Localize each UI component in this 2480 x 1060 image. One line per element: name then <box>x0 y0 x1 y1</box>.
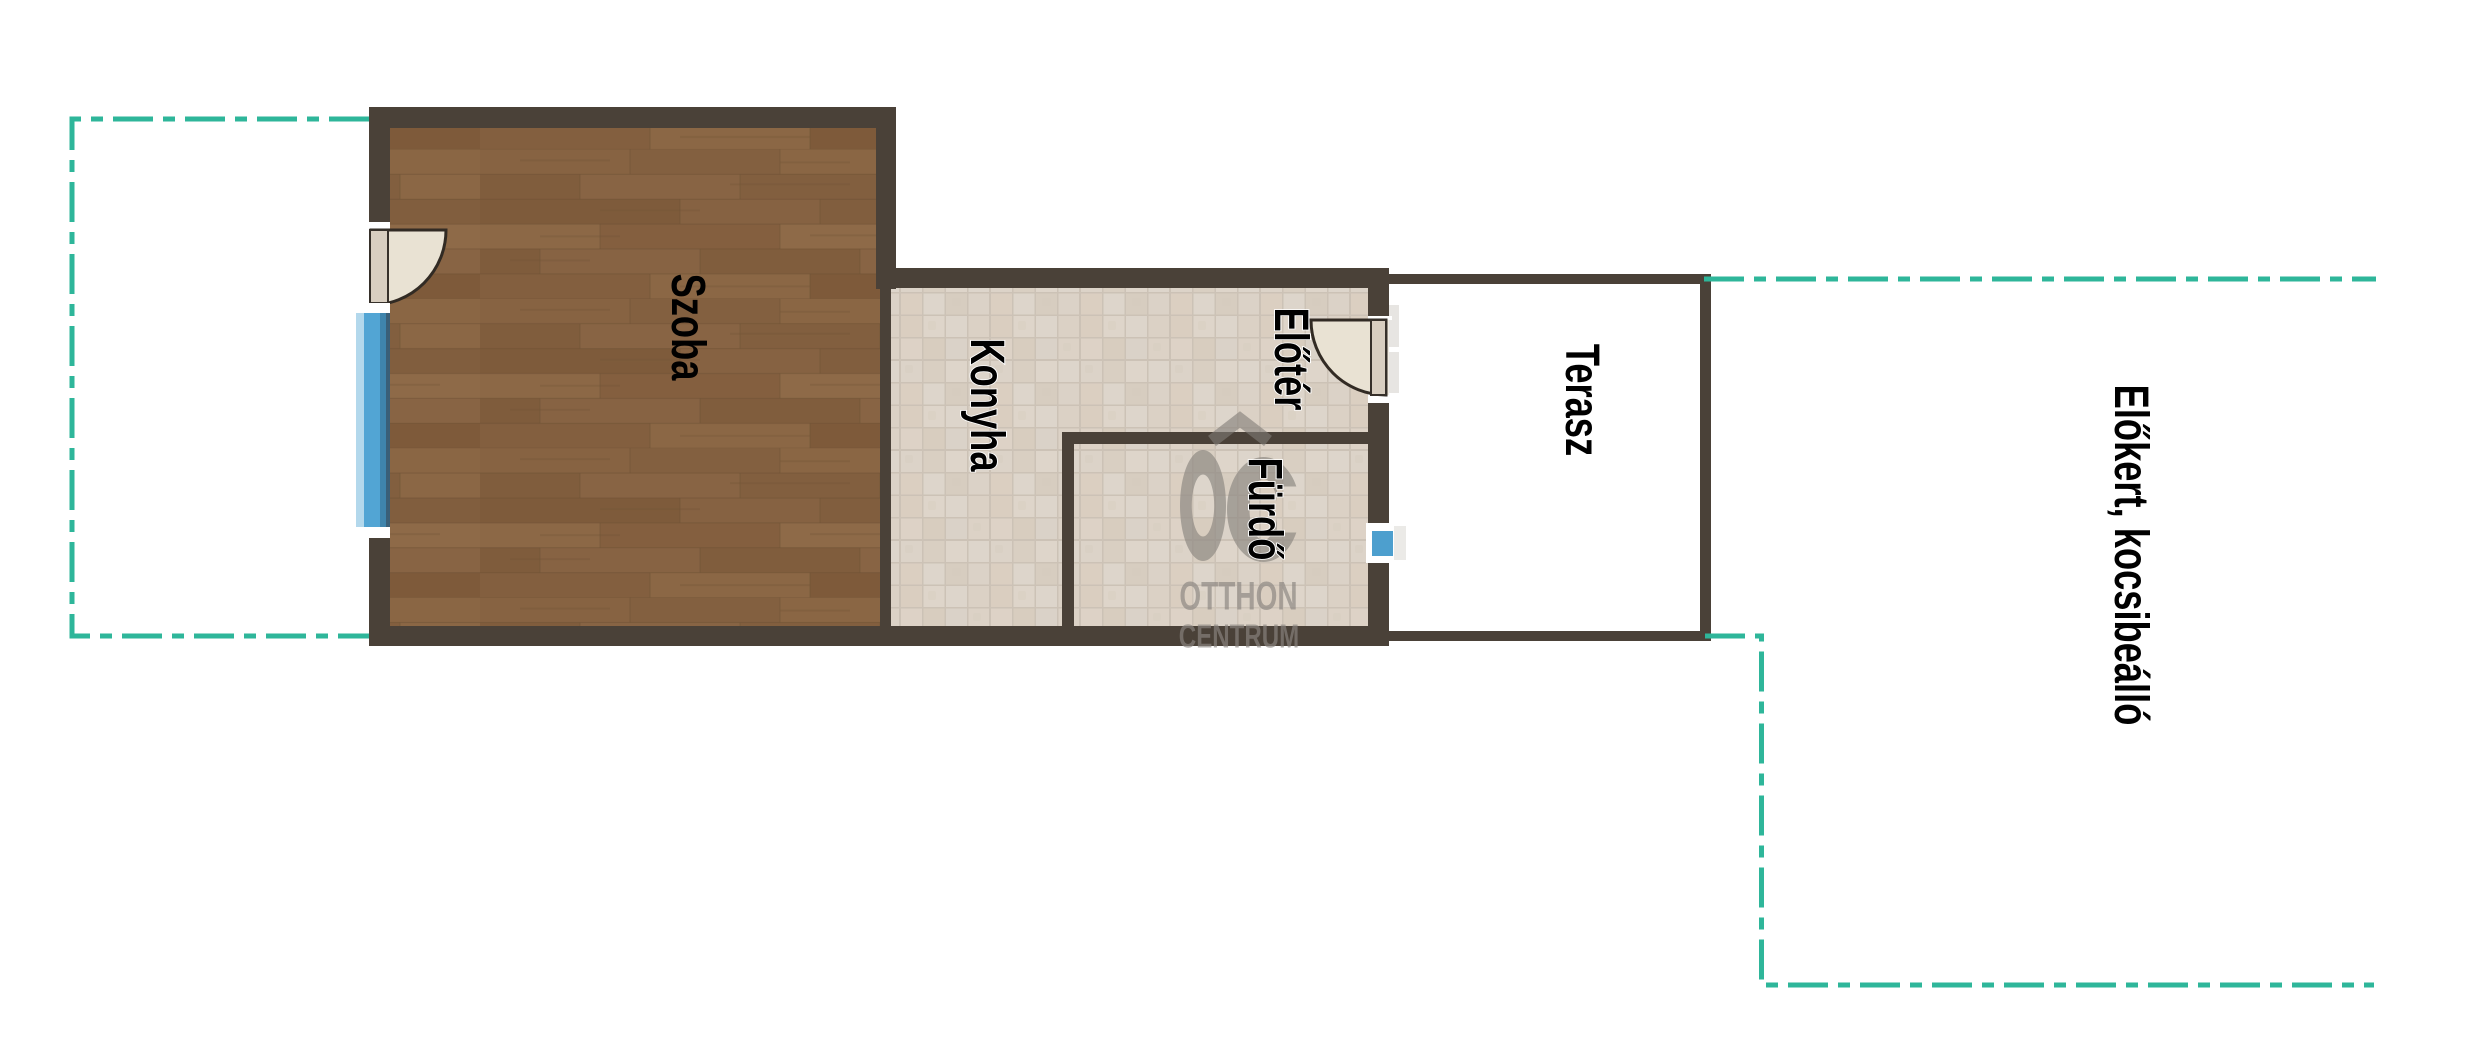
svg-text:OTTHON: OTTHON <box>1179 575 1297 619</box>
svg-text:Előtér: Előtér <box>1264 308 1318 411</box>
svg-text:Fürdő: Fürdő <box>1238 458 1292 561</box>
svg-text:Konyha: Konyha <box>960 338 1014 471</box>
svg-text:CENTRUM: CENTRUM <box>1179 619 1299 656</box>
svg-text:Szoba: Szoba <box>661 274 715 381</box>
svg-text:Előkert, kocsibeálló: Előkert, kocsibeálló <box>2104 385 2158 726</box>
svg-text:Terasz: Terasz <box>1555 344 1609 456</box>
